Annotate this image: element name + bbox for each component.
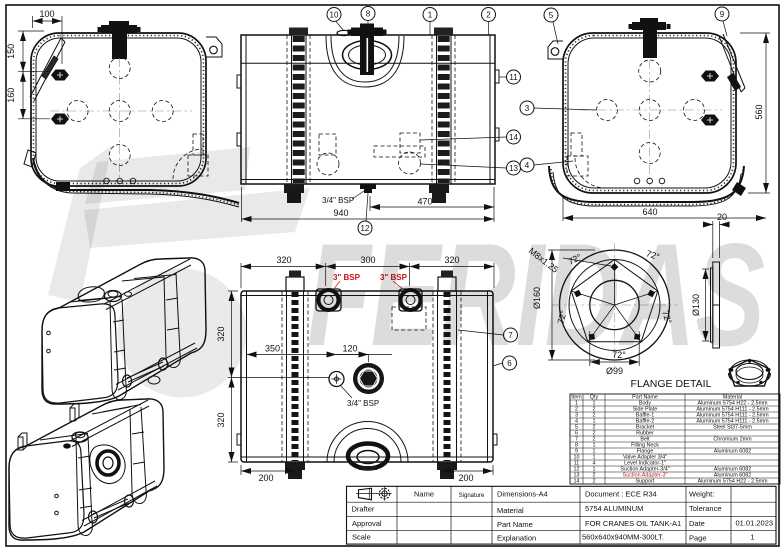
svg-text:470: 470 (417, 197, 432, 207)
svg-text:Signature: Signature (459, 493, 485, 499)
svg-text:2: 2 (593, 478, 596, 484)
svg-text:Weight:: Weight: (689, 490, 714, 499)
svg-text:Part Name: Part Name (497, 520, 533, 529)
svg-text:Drafter: Drafter (352, 505, 375, 514)
svg-text:560x640x940MM-300LT.: 560x640x940MM-300LT. (582, 533, 664, 542)
svg-text:Document : ECE R34: Document : ECE R34 (585, 490, 657, 499)
svg-text:Tolerance: Tolerance (689, 504, 722, 513)
svg-text:11: 11 (509, 73, 518, 82)
svg-text:2: 2 (486, 11, 491, 20)
svg-text:Chromium 2mm: Chromium 2mm (713, 436, 752, 442)
svg-text:FERIDAS: FERIDAS (307, 213, 765, 376)
svg-text:200: 200 (258, 473, 273, 483)
svg-text:350: 350 (265, 344, 280, 354)
svg-text:3/4" BSP: 3/4" BSP (322, 196, 354, 205)
svg-text:8: 8 (366, 10, 371, 19)
svg-text:100: 100 (39, 9, 54, 19)
svg-text:1: 1 (428, 11, 433, 20)
svg-text:150: 150 (6, 44, 16, 59)
svg-text:560: 560 (754, 104, 764, 119)
svg-text:Aluminum 6082: Aluminum 6082 (714, 448, 751, 454)
svg-text:160: 160 (6, 88, 16, 103)
svg-text:Steel St37-5mm: Steel St37-5mm (713, 424, 752, 430)
svg-text:Page: Page (689, 534, 707, 543)
svg-text:Dimensions-A4: Dimensions-A4 (497, 490, 548, 499)
svg-text:10: 10 (330, 11, 339, 20)
svg-text:14: 14 (509, 133, 518, 142)
svg-text:9: 9 (720, 10, 725, 19)
svg-text:5754 ALUMINUM: 5754 ALUMINUM (585, 504, 643, 513)
svg-text:200: 200 (458, 473, 473, 483)
svg-text:4: 4 (525, 161, 530, 170)
svg-text:1: 1 (750, 533, 754, 542)
svg-text:Aluminum 5754 H22 - 2.5mm: Aluminum 5754 H22 - 2.5mm (697, 478, 768, 484)
svg-text:Explanation: Explanation (497, 534, 536, 543)
svg-text:3: 3 (525, 104, 530, 113)
svg-text:5: 5 (549, 11, 554, 20)
svg-text:Name: Name (414, 490, 434, 499)
svg-text:Material: Material (497, 506, 524, 515)
svg-text:FLANGE DETAIL: FLANGE DETAIL (631, 378, 712, 390)
svg-text:13: 13 (509, 164, 518, 173)
svg-text:Date: Date (689, 519, 705, 528)
svg-text:Approval: Approval (352, 519, 382, 528)
svg-text:3/4" BSP: 3/4" BSP (347, 399, 379, 408)
svg-text:Scale: Scale (352, 533, 371, 542)
svg-text:Support: Support (636, 478, 655, 484)
svg-text:14: 14 (574, 478, 580, 484)
svg-text:01.01.2023: 01.01.2023 (736, 519, 774, 528)
svg-text:FOR CRANES OIL TANK-A1: FOR CRANES OIL TANK-A1 (585, 519, 681, 528)
svg-text:320: 320 (216, 412, 226, 427)
svg-text:320: 320 (276, 255, 291, 265)
